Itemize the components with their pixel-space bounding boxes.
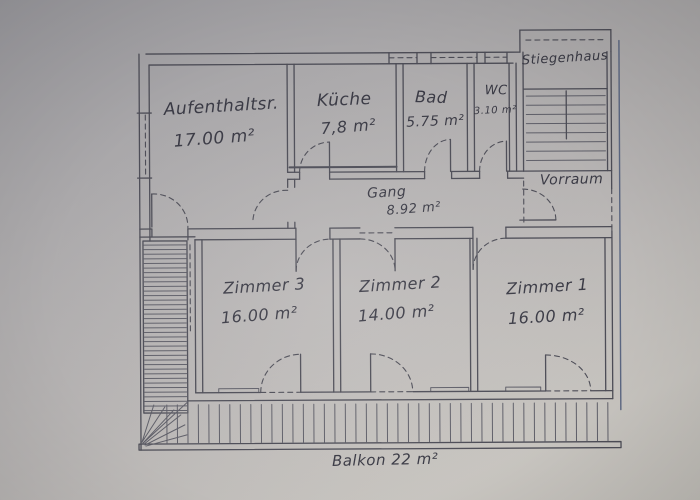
label-vorraum-name: Vorraum <box>540 171 604 188</box>
floorplan-drawing <box>0 0 700 500</box>
side-stairs-hatch <box>143 241 188 413</box>
label-balkon: Balkon 22 m² <box>332 450 439 470</box>
staircase <box>523 52 612 223</box>
paper-sheet: Aufenthaltsr. 17.00 m² Küche 7,8 m² Bad … <box>0 0 700 500</box>
label-wc-area: 3.10 m² <box>474 104 517 117</box>
label-gang-name: Gang <box>367 184 407 202</box>
floorplan-photo: Aufenthaltsr. 17.00 m² Küche 7,8 m² Bad … <box>0 0 700 500</box>
label-wc-name: WC <box>485 83 508 98</box>
label-kueche-name: Küche <box>317 89 372 111</box>
side-stairs-lines <box>144 245 187 411</box>
balcony-railing-ticks <box>167 403 608 443</box>
door-swings <box>151 139 590 393</box>
label-bad-name: Bad <box>415 87 448 107</box>
label-balkon-area: 22 m² <box>391 450 438 469</box>
label-bad-area: 5.75 m² <box>406 112 465 130</box>
balcony <box>139 400 621 451</box>
label-balkon-name: Balkon <box>332 451 386 470</box>
